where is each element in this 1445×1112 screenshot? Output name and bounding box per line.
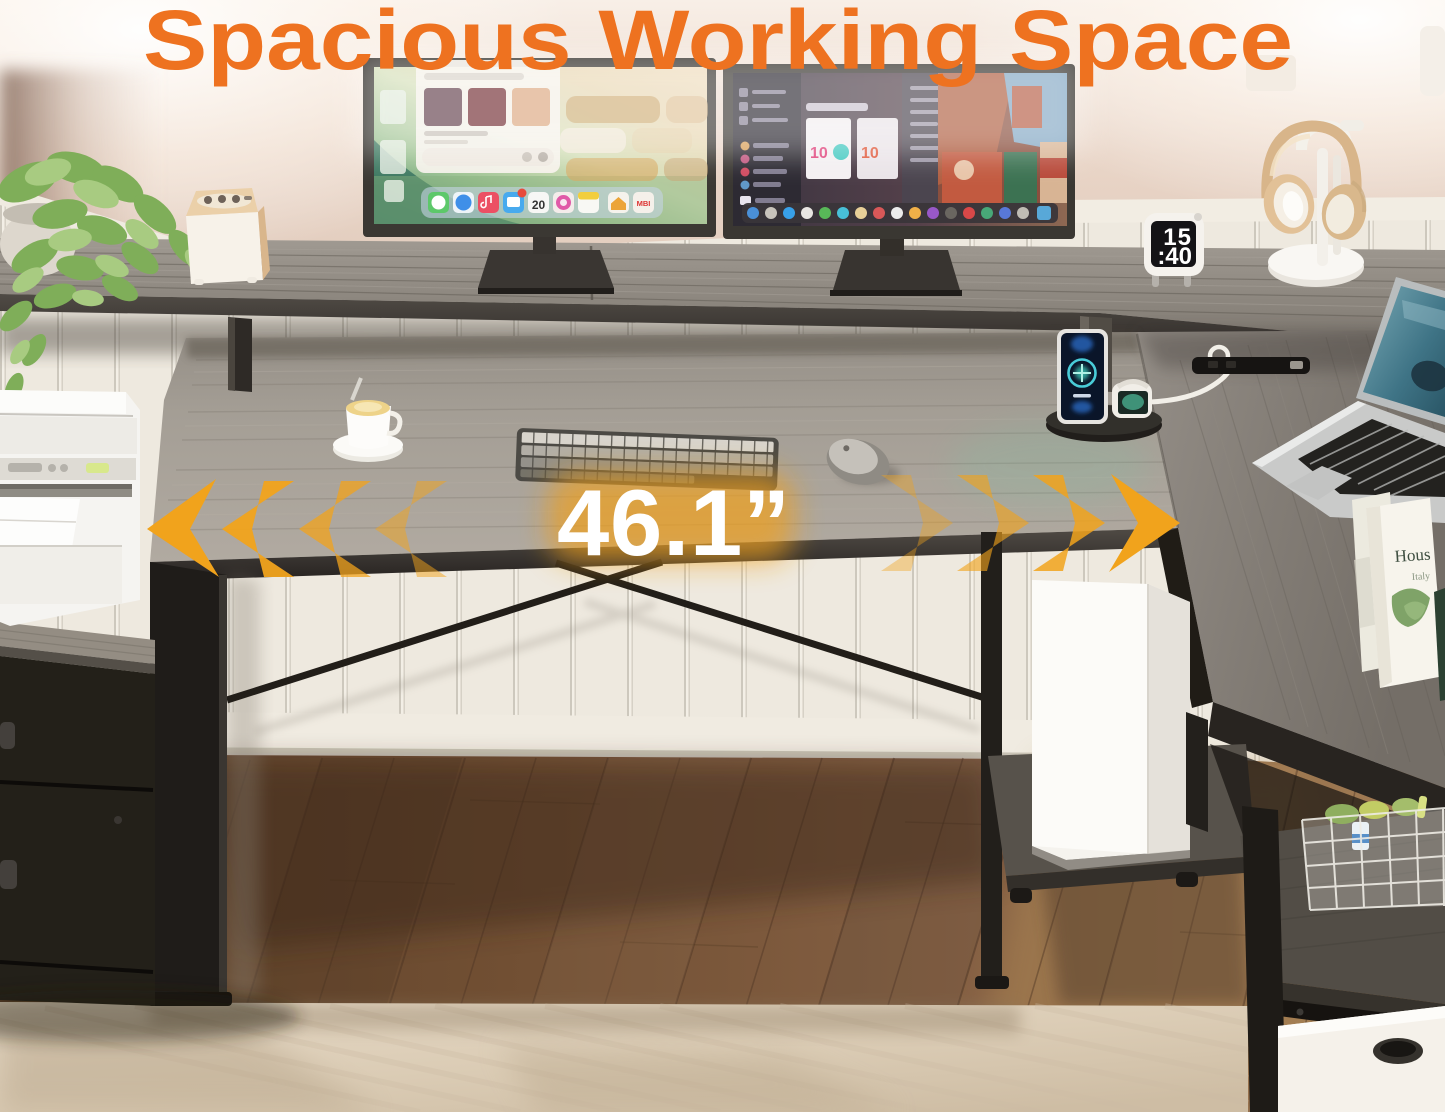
svg-text:Italy: Italy (1411, 571, 1430, 583)
svg-text:46.1”: 46.1” (557, 470, 790, 575)
svg-text:Spacious Working Space: Spacious Working Space (143, 0, 1293, 87)
svg-text:20: 20 (532, 198, 546, 212)
svg-text::40: :40 (1157, 243, 1192, 270)
svg-text:Hous: Hous (1394, 545, 1431, 566)
svg-text:MBI: MBI (637, 199, 651, 208)
